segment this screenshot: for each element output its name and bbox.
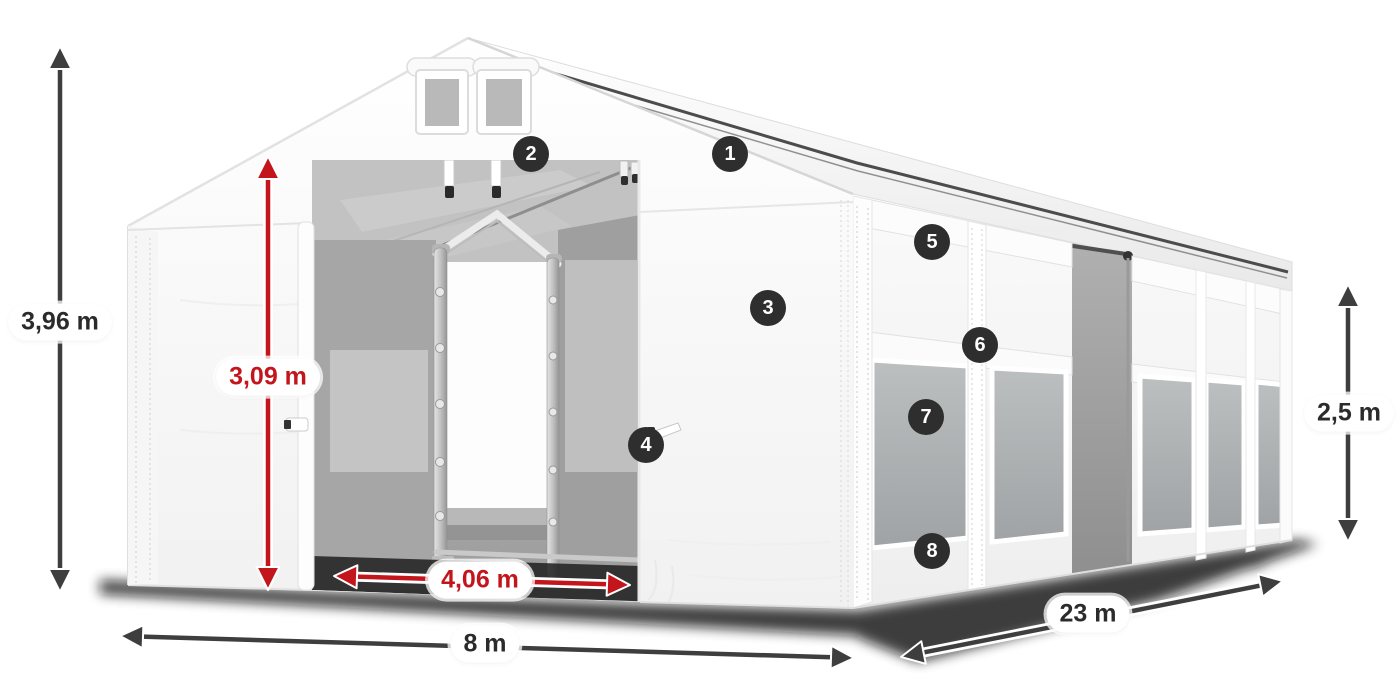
dimension-label-front-width: 8 m xyxy=(450,626,519,663)
side-window xyxy=(992,368,1066,542)
side-window xyxy=(1140,376,1194,534)
dimension-label-entrance-height: 3,09 m xyxy=(216,359,320,396)
tent-interior xyxy=(312,160,640,602)
dimension-label-entrance-width: 4,06 m xyxy=(428,562,532,599)
side-pillar xyxy=(1246,281,1255,552)
corner-pillar xyxy=(853,196,872,608)
callout-badge-8[interactable]: 8 xyxy=(914,533,950,569)
vent-window-glass xyxy=(425,79,459,126)
callout-badge-4[interactable]: 4 xyxy=(628,427,664,463)
callout-badge-5[interactable]: 5 xyxy=(914,224,950,260)
tent-diagram-stage: 3,96 m 3,09 m 4,06 m 8 m 23 m 2,5 m 1 2 … xyxy=(0,0,1400,700)
dimension-label-total-height: 3,96 m xyxy=(8,304,112,341)
callout-badge-2[interactable]: 2 xyxy=(513,136,549,172)
vent-window-glass xyxy=(486,79,522,126)
entrance-left-post xyxy=(298,222,314,590)
side-pillar xyxy=(1196,270,1206,560)
callout-badge-1[interactable]: 1 xyxy=(712,136,748,172)
side-window xyxy=(1206,380,1244,530)
dimension-label-side-height: 2,5 m xyxy=(1304,395,1394,432)
dimension-label-side-length: 23 m xyxy=(1047,596,1130,633)
side-pillar xyxy=(968,221,986,590)
callout-badge-3[interactable]: 3 xyxy=(750,290,786,326)
side-window xyxy=(872,360,968,548)
side-open-section xyxy=(1072,243,1132,574)
callout-badge-7[interactable]: 7 xyxy=(908,399,944,435)
callout-badge-6[interactable]: 6 xyxy=(962,327,998,363)
tent-illustration xyxy=(0,0,1400,700)
far-corner-pillar xyxy=(1280,289,1292,543)
